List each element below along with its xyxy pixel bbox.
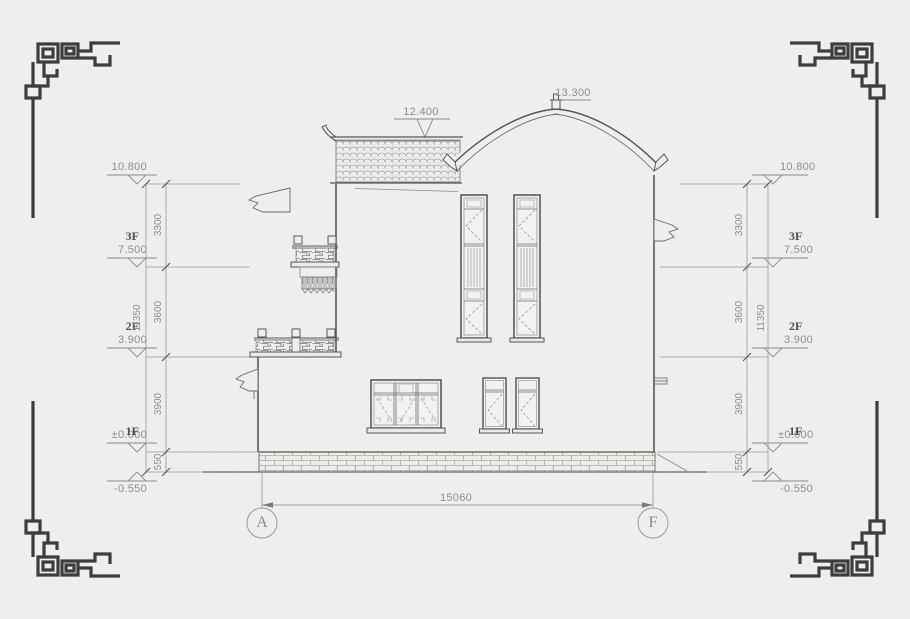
floor-label-1f-left: 1F: [113, 425, 139, 438]
balcony-slab-2f: [250, 352, 341, 357]
window-sill: [510, 338, 544, 342]
tall-window-right: [510, 195, 544, 342]
narrow-window-1f-left: [480, 378, 510, 433]
floor-label-2f-right: 2F: [789, 320, 815, 333]
dim-550-right: 550: [734, 442, 746, 482]
grade-slope: [657, 454, 687, 471]
level-f3-left: 7.500: [99, 244, 147, 256]
grid-label-f: F: [638, 514, 668, 532]
floor-label-1f-right: 1F: [789, 425, 815, 438]
floor-label-3f-right: 3F: [789, 230, 815, 243]
brick-plinth: [259, 452, 655, 472]
balcony-slab-3f: [291, 262, 339, 267]
level-roof-flat: 12.400: [396, 106, 446, 118]
dim-3600-right: 3600: [734, 292, 746, 332]
building-outline: [258, 175, 654, 452]
dim-11350-right: 11350: [756, 298, 768, 338]
corner-fret-top-left: [26, 43, 120, 218]
window-sill: [513, 429, 543, 433]
flat-roof-tile-band: [322, 125, 463, 192]
window-sill: [367, 428, 445, 433]
dim-arrow-left: [262, 502, 273, 508]
dim-3900-right: 3900: [734, 384, 746, 424]
level-ground-left: -0.550: [99, 483, 147, 495]
horizontal-dimension: [247, 473, 668, 538]
lattice-window-1f: [367, 380, 445, 433]
floor-label-3f-left: 3F: [113, 230, 139, 243]
eave-bracket-upper-left: [249, 188, 290, 212]
slab-edge-lower-right: [654, 378, 667, 384]
dim-3600-left: 3600: [153, 292, 165, 332]
dim-3900-left: 3900: [153, 384, 165, 424]
eave-end-brackets: [236, 188, 678, 399]
eave-bracket-upper-right: [654, 219, 678, 241]
dim-3300-right: 3300: [734, 205, 746, 245]
level-ground-right: -0.550: [780, 483, 813, 495]
dim-11350-left: 11350: [132, 298, 144, 338]
window-sill: [480, 429, 510, 433]
level-f2-right: 3.900: [784, 334, 813, 346]
window-sill: [457, 338, 491, 342]
corner-fret-top-right: [790, 43, 884, 218]
hanging-valance: [302, 277, 336, 289]
level-parapet-left: 10.800: [99, 161, 147, 173]
dim-550-left: 550: [153, 442, 165, 482]
gable-roof: [443, 94, 668, 171]
eave-bracket-lower-left: [236, 369, 258, 399]
elevation-sheet: 12.400 13.300 10.800 7.500 3.900 ±0.000 …: [0, 0, 910, 619]
dim-3300-left: 3300: [153, 205, 165, 245]
upturned-eave-tip-gable-right: [654, 154, 668, 171]
dim-arrow-right: [642, 502, 653, 508]
dimension-ticks: [142, 180, 772, 476]
balcony-2f: [250, 329, 341, 357]
level-ridge: 13.300: [550, 87, 596, 99]
level-parapet-right: 10.800: [780, 161, 815, 173]
tall-window-left: [457, 195, 491, 342]
balcony-3f: [291, 236, 339, 293]
upturned-eave-tip-left: [322, 125, 336, 141]
narrow-window-1f-right: [513, 378, 543, 433]
level-f3-right: 7.500: [784, 244, 813, 256]
grid-label-a: A: [247, 514, 277, 532]
dim-15060: 15060: [430, 492, 482, 504]
fret-railing-3f: [296, 248, 334, 262]
